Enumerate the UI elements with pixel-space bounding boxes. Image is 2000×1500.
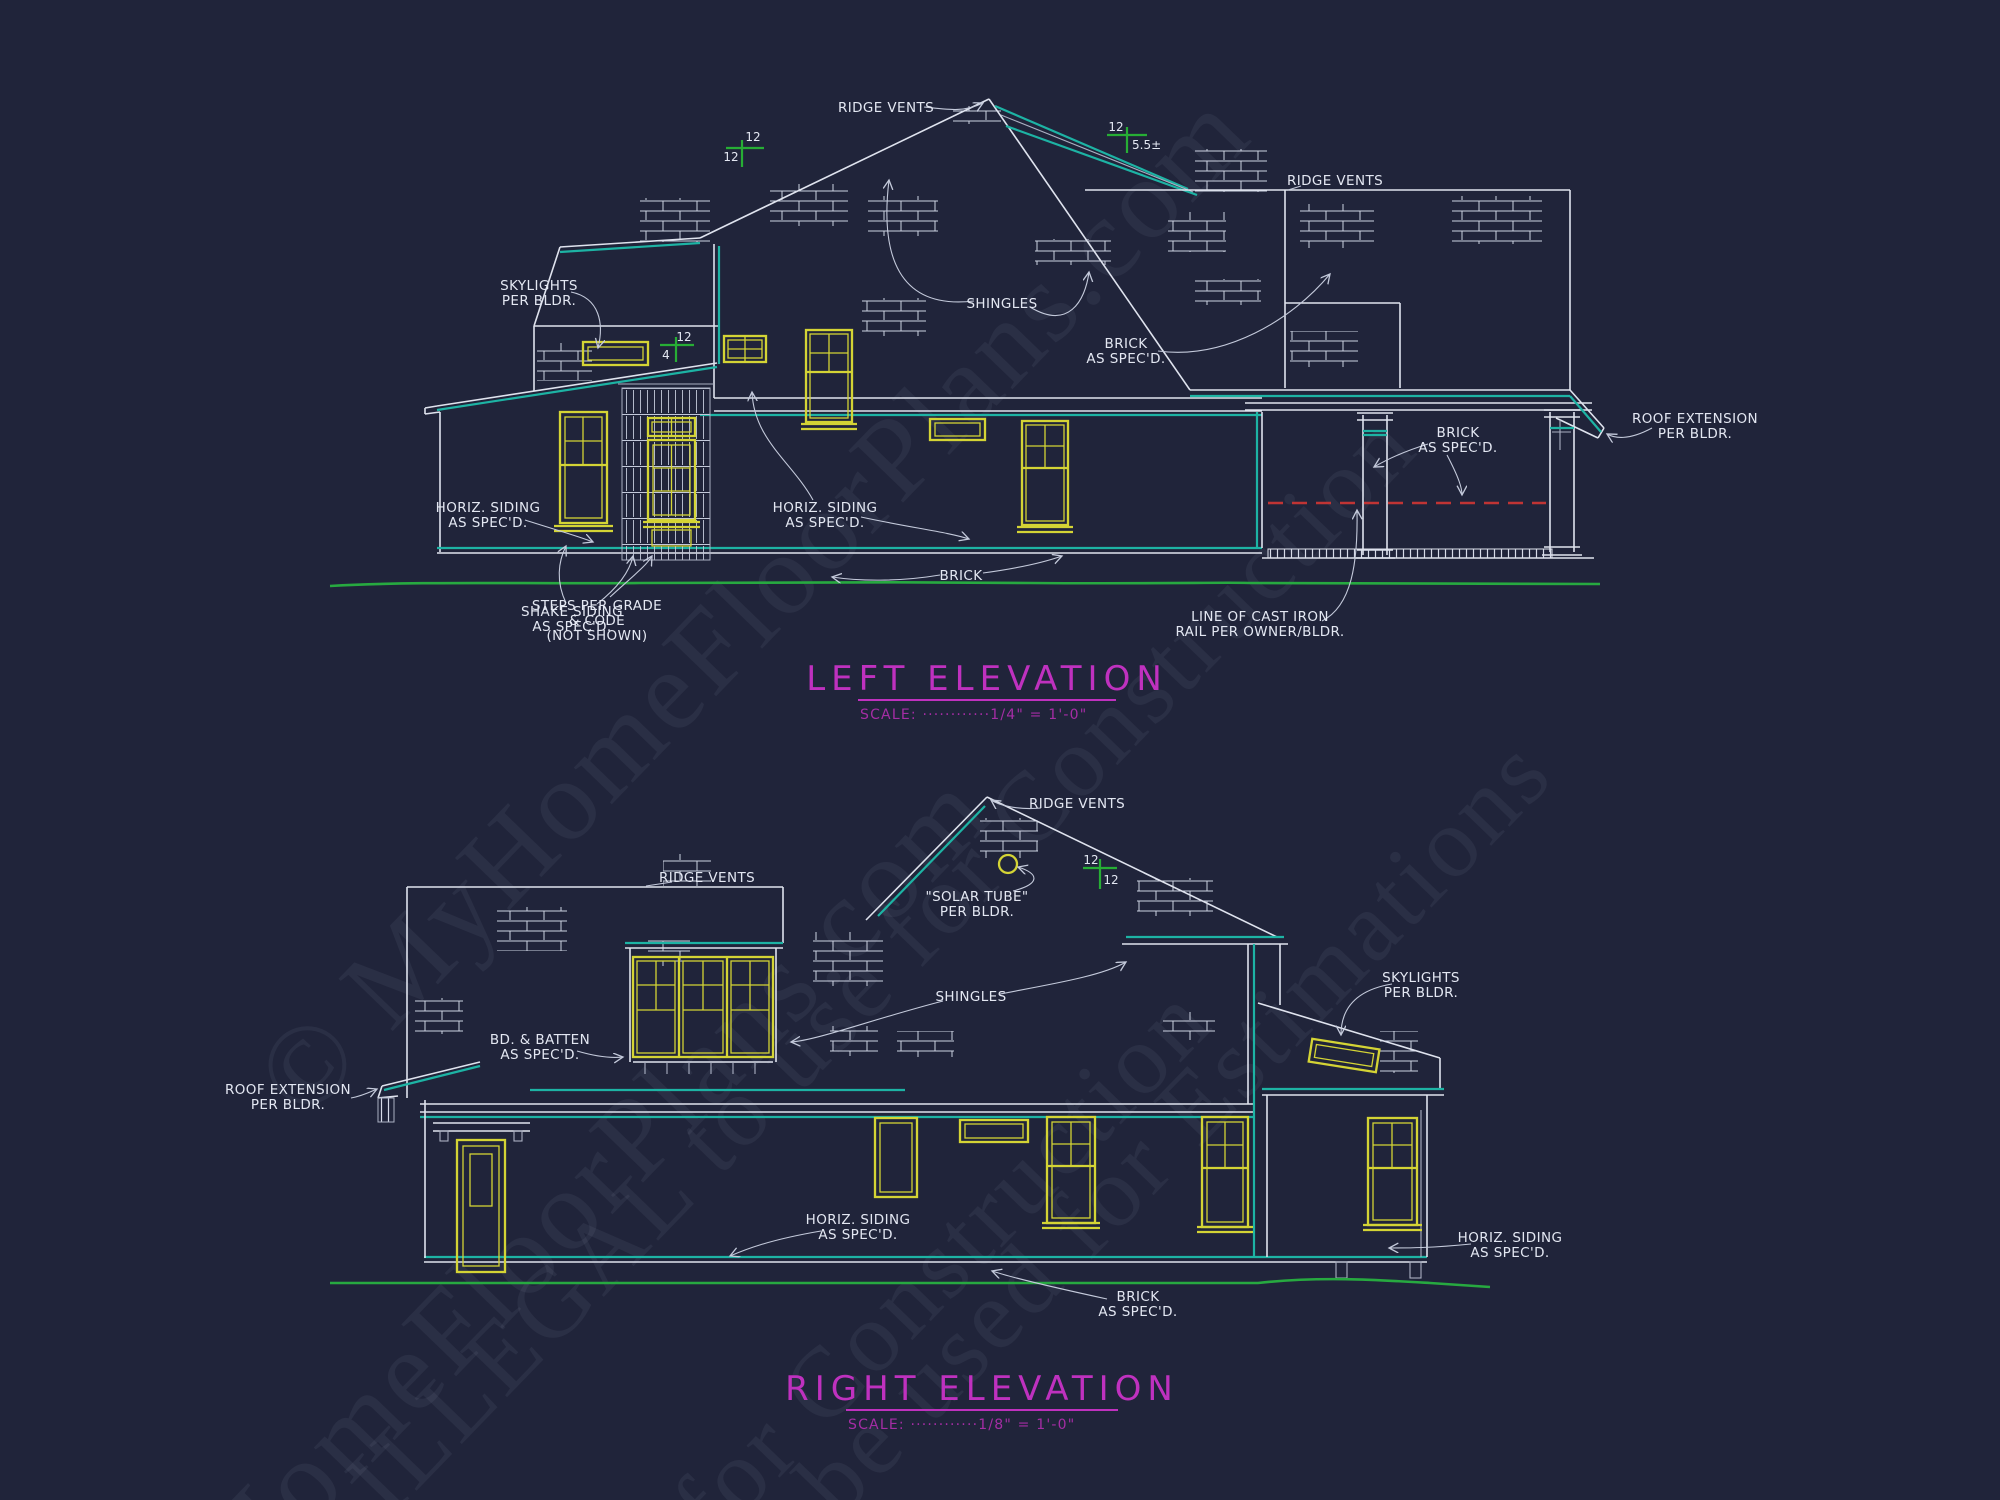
label-roof-extension: ROOF EXTENSION — [1632, 411, 1758, 427]
pitch-run: 4 — [662, 348, 670, 362]
label-shingles: SHINGLES — [935, 989, 1006, 1005]
window — [1017, 421, 1073, 532]
label-horiz-siding-left: AS SPEC'D. — [448, 515, 527, 531]
label-horiz-siding-center: HORIZ. SIDING — [806, 1212, 911, 1228]
label-skylights: SKYLIGHTS — [500, 278, 578, 294]
label-bd-batten: BD. & BATTEN — [490, 1032, 590, 1048]
label-solar-tube: PER BLDR. — [940, 904, 1014, 920]
window — [875, 1118, 917, 1197]
label-ridge-vents-top: RIDGE VENTS — [838, 100, 934, 116]
pitch-rise: 12 — [1083, 853, 1098, 867]
pitch-rise: 12 — [676, 330, 691, 344]
label-solar-tube: "SOLAR TUBE" — [925, 889, 1028, 905]
label-brick-as-specd-wall: BRICK — [1105, 336, 1149, 352]
skylight — [583, 342, 648, 365]
label-skylights: SKYLIGHTS — [1382, 970, 1460, 986]
left-elevation-drawing: 12 12 12 5.5± 12 4 RIDGE VENTS RIDGE VEN… — [330, 99, 1758, 723]
watermark: © MyHomeFloorPlans.com ILLEGAL to use fo… — [0, 66, 1573, 1500]
label-ridge-vents-left: RIDGE VENTS — [659, 870, 755, 886]
label-brick-as-specd: AS SPEC'D. — [1098, 1304, 1177, 1320]
window — [724, 336, 766, 362]
elevation-drawing-sheet: © MyHomeFloorPlans.com ILLEGAL to use fo… — [0, 0, 2000, 1500]
blueprint-canvas: © MyHomeFloorPlans.com ILLEGAL to use fo… — [0, 0, 2000, 1500]
pitch-rise: 12 — [1108, 120, 1123, 134]
pitch-marker-12-12: 12 12 — [723, 130, 764, 167]
label-horiz-siding-left: HORIZ. SIDING — [436, 500, 541, 516]
label-skylights: PER BLDR. — [502, 293, 576, 309]
label-roof-extension: PER BLDR. — [1658, 426, 1732, 442]
left-elevation-scale: SCALE: ············1/4" = 1'-0" — [860, 707, 1087, 723]
left-elevation-title: LEFT ELEVATION — [806, 659, 1168, 699]
pitch-run: 5.5± — [1132, 138, 1161, 152]
label-roof-extension: ROOF EXTENSION — [225, 1082, 351, 1098]
pitch-run: 12 — [723, 150, 738, 164]
label-horiz-siding-right: AS SPEC'D. — [1470, 1245, 1549, 1261]
label-horiz-siding-center: HORIZ. SIDING — [773, 500, 878, 516]
label-roof-extension: PER BLDR. — [251, 1097, 325, 1113]
right-elevation-scale: SCALE: ············1/8" = 1'-0" — [848, 1417, 1075, 1433]
label-shingles: SHINGLES — [966, 296, 1037, 312]
shake-siding-bay — [618, 384, 714, 560]
label-steps: (NOT SHOWN) — [547, 628, 648, 644]
label-skylights: PER BLDR. — [1384, 985, 1458, 1001]
label-bd-batten: AS SPEC'D. — [500, 1047, 579, 1063]
label-brick-as-specd-porch: AS SPEC'D. — [1418, 440, 1497, 456]
label-ridge-vents-right: RIDGE VENTS — [1029, 796, 1125, 812]
pitch-marker-12-4: 12 4 — [660, 330, 694, 362]
label-horiz-siding-center: AS SPEC'D. — [818, 1227, 897, 1243]
label-brick-as-specd-porch: BRICK — [1437, 425, 1481, 441]
label-ridge-vents-right: RIDGE VENTS — [1287, 173, 1383, 189]
label-cast-iron-rail: LINE OF CAST IRON — [1191, 609, 1329, 625]
window — [1363, 1118, 1422, 1230]
pitch-rise: 12 — [745, 130, 760, 144]
pitch-run: 12 — [1103, 873, 1118, 887]
label-brick: BRICK — [940, 568, 984, 584]
label-horiz-siding-right: HORIZ. SIDING — [1458, 1230, 1563, 1246]
label-cast-iron-rail: RAIL PER OWNER/BLDR. — [1175, 624, 1344, 640]
right-elevation-title: RIGHT ELEVATION — [785, 1369, 1179, 1409]
window — [554, 412, 613, 531]
label-steps: & CODE — [569, 613, 625, 629]
label-brick-as-specd: BRICK — [1117, 1289, 1161, 1305]
label-horiz-siding-center: AS SPEC'D. — [785, 515, 864, 531]
label-brick-as-specd-wall: AS SPEC'D. — [1086, 351, 1165, 367]
label-steps: STEPS PER GRADE — [532, 598, 662, 614]
